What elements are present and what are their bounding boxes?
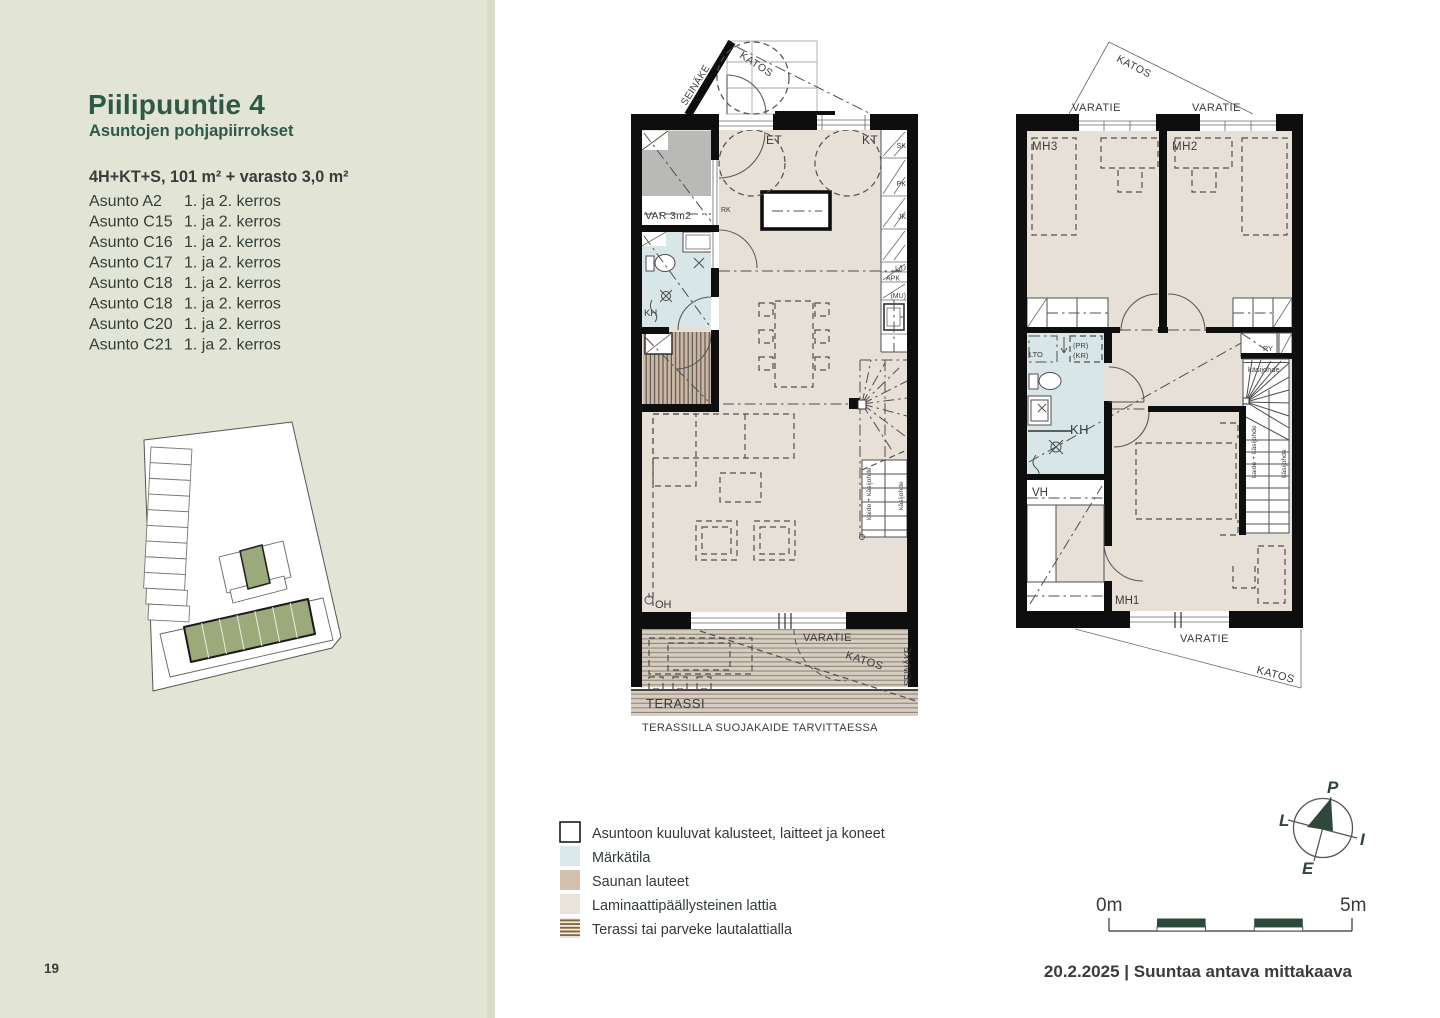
svg-text:OH: OH: [655, 599, 672, 611]
svg-text:VH: VH: [1032, 487, 1048, 499]
svg-text:P: P: [1327, 778, 1339, 797]
svg-text:KH: KH: [644, 308, 657, 319]
svg-text:VARATIE: VARATIE: [803, 632, 852, 644]
svg-text:KATOS: KATOS: [1115, 53, 1154, 81]
svg-text:Terassi tai parveke lautalatti: Terassi tai parveke lautalattialla: [592, 922, 792, 938]
svg-text:VARATIE: VARATIE: [1072, 102, 1121, 114]
svg-text:KATOS: KATOS: [737, 49, 775, 79]
svg-text:MH3: MH3: [1032, 141, 1058, 153]
svg-text:(PR): (PR): [1073, 341, 1089, 350]
svg-text:Märkätila: Märkätila: [592, 850, 650, 866]
svg-text:Asunto C20: Asunto C20: [89, 316, 173, 333]
svg-text:1. ja 2. kerros: 1. ja 2. kerros: [184, 296, 281, 313]
svg-text:MH2: MH2: [1172, 141, 1198, 153]
svg-text:1. ja 2. kerros: 1. ja 2. kerros: [184, 316, 281, 333]
svg-text:19: 19: [44, 961, 59, 976]
svg-text:kaide + käsijohde: kaide + käsijohde: [1251, 425, 1258, 478]
svg-text:käsijohde: käsijohde: [898, 481, 905, 510]
svg-text:E: E: [1302, 859, 1314, 878]
svg-text:1. ja 2. kerros: 1. ja 2. kerros: [184, 193, 281, 210]
svg-text:ET: ET: [766, 133, 783, 147]
svg-text:Asunto A2: Asunto A2: [89, 193, 162, 210]
svg-text:Asunto C17: Asunto C17: [89, 255, 173, 272]
svg-text:VARATIE: VARATIE: [1192, 102, 1241, 114]
svg-text:kaide + käsijohde: kaide + käsijohde: [866, 467, 873, 520]
svg-text:PK: PK: [897, 181, 907, 188]
svg-text:I: I: [1360, 830, 1366, 849]
svg-text:PY: PY: [1263, 344, 1273, 353]
svg-text:1. ja 2. kerros: 1. ja 2. kerros: [184, 275, 281, 292]
svg-text:Asunto C18: Asunto C18: [89, 275, 173, 292]
svg-text:SK: SK: [897, 143, 907, 150]
svg-text:1. ja 2. kerros: 1. ja 2. kerros: [184, 337, 281, 354]
svg-text:TERASSILLA SUOJAKAIDE TARVITTA: TERASSILLA SUOJAKAIDE TARVITTAESSA: [642, 722, 878, 734]
svg-text:Asuntojen pohjapiirrokset: Asuntojen pohjapiirrokset: [89, 122, 294, 140]
svg-text:1. ja 2. kerros: 1. ja 2. kerros: [184, 234, 281, 251]
svg-text:(KR): (KR): [1073, 351, 1089, 360]
svg-text:Asunto C16: Asunto C16: [89, 234, 173, 251]
svg-text:käsijohde: käsijohde: [1248, 365, 1280, 374]
svg-text:Asunto C21: Asunto C21: [89, 337, 173, 354]
svg-text:Asunto C18: Asunto C18: [89, 296, 173, 313]
svg-text:RK: RK: [721, 207, 731, 214]
svg-text:LTO: LTO: [1029, 350, 1043, 359]
svg-text:4H+KT+S, 101 m² + varasto 3,0: 4H+KT+S, 101 m² + varasto 3,0 m²: [89, 168, 349, 186]
svg-text:KT: KT: [862, 133, 879, 147]
svg-text:KH: KH: [1070, 422, 1089, 437]
svg-text:(MU): (MU): [890, 293, 906, 300]
svg-text:20.2.2025 | Suuntaa antava mit: 20.2.2025 | Suuntaa antava mittakaava: [1044, 962, 1353, 981]
svg-text:VARATIE: VARATIE: [1180, 633, 1229, 645]
svg-text:TERASSI: TERASSI: [646, 696, 705, 711]
svg-text:MH1: MH1: [1115, 595, 1139, 607]
svg-text:Asunto C15: Asunto C15: [89, 214, 173, 231]
svg-text:SEINÄKE: SEINÄKE: [903, 647, 913, 686]
svg-text:KATOS: KATOS: [1255, 664, 1296, 686]
svg-text:Asuntoon kuuluvat kalusteet, l: Asuntoon kuuluvat kalusteet, laitteet ja…: [592, 826, 885, 842]
svg-text:VAR 3m2: VAR 3m2: [645, 210, 691, 222]
svg-text:JK: JK: [898, 214, 907, 221]
svg-text:1. ja 2. kerros: 1. ja 2. kerros: [184, 214, 281, 231]
svg-text:0m: 0m: [1096, 895, 1122, 916]
svg-text:5m: 5m: [1340, 895, 1366, 916]
svg-text:Piilipuuntie 4: Piilipuuntie 4: [88, 89, 265, 120]
svg-text:L: L: [1279, 811, 1289, 830]
svg-text:1. ja 2. kerros: 1. ja 2. kerros: [184, 255, 281, 272]
svg-text:Saunan lauteet: Saunan lauteet: [592, 874, 689, 890]
svg-text:käsijohde: käsijohde: [1281, 449, 1288, 478]
svg-text:APK: APK: [886, 276, 900, 283]
svg-text:Laminaattipäällysteinen lattia: Laminaattipäällysteinen lattia: [592, 898, 777, 914]
